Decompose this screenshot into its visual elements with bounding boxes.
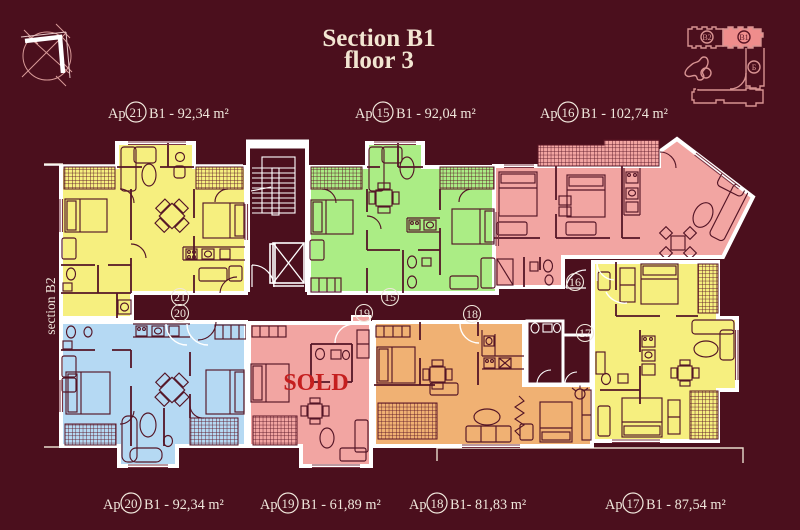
svg-text:B1: B1 — [739, 33, 748, 42]
svg-text:B1- 81,83 m²: B1- 81,83 m² — [450, 497, 526, 513]
svg-text:15: 15 — [377, 105, 390, 120]
svg-text:Б: Б — [752, 63, 757, 72]
svg-text:18: 18 — [431, 496, 444, 511]
svg-text:21: 21 — [130, 105, 143, 120]
svg-text:17: 17 — [627, 496, 641, 511]
svg-text:section B2: section B2 — [43, 277, 58, 334]
svg-text:B2: B2 — [702, 33, 711, 42]
svg-text:16: 16 — [562, 105, 576, 120]
svg-text:floor 3: floor 3 — [344, 47, 414, 74]
svg-text:B1 - 61,89 m²: B1 - 61,89 m² — [301, 497, 381, 513]
svg-text:B1 - 102,74 m²: B1 - 102,74 m² — [581, 106, 668, 122]
svg-text:21: 21 — [174, 290, 186, 304]
svg-text:16: 16 — [569, 275, 581, 289]
svg-text:20: 20 — [125, 496, 138, 511]
svg-text:B1 - 92,34 m²: B1 - 92,34 m² — [149, 106, 229, 122]
svg-text:B1 - 87,54 m²: B1 - 87,54 m² — [646, 497, 726, 513]
svg-text:19: 19 — [282, 496, 295, 511]
svg-text:SOLD: SOLD — [283, 370, 348, 396]
svg-text:B1 - 92,04 m²: B1 - 92,04 m² — [396, 106, 476, 122]
svg-text:B1 - 92,34 m²: B1 - 92,34 m² — [144, 497, 224, 513]
svg-text:17: 17 — [579, 326, 591, 340]
svg-text:18: 18 — [466, 307, 478, 321]
svg-text:19: 19 — [358, 306, 370, 320]
svg-text:15: 15 — [384, 290, 396, 304]
svg-text:20: 20 — [174, 306, 186, 320]
